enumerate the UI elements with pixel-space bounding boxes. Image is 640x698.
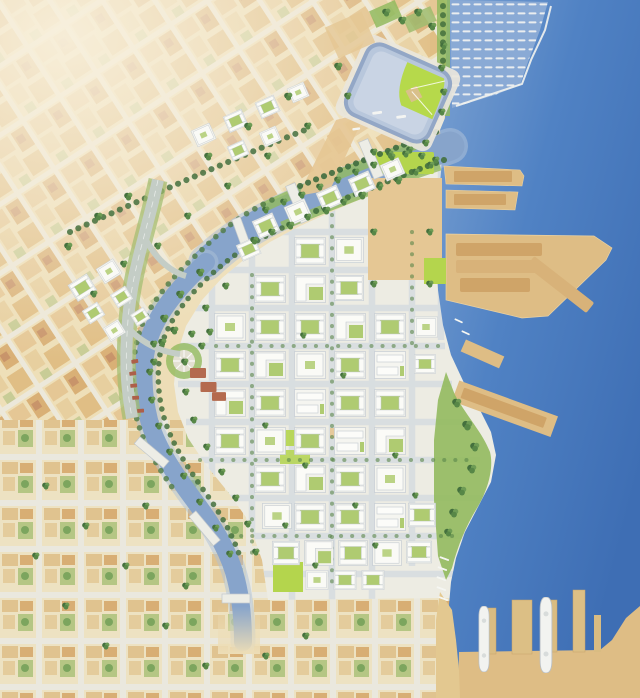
city-block (295, 238, 326, 265)
city-block (335, 504, 366, 531)
city-block (375, 352, 406, 379)
finger-pier (594, 615, 601, 652)
city-block (295, 276, 326, 303)
city-block (335, 390, 366, 417)
finger-pier (512, 600, 532, 654)
city-block (305, 540, 334, 565)
bridge-creek-c (222, 594, 250, 603)
city-block (335, 428, 366, 455)
city-block (295, 428, 326, 455)
city-block (215, 352, 246, 379)
city-block (406, 541, 431, 563)
city-block (334, 275, 363, 300)
brick-building (201, 382, 217, 392)
city-block (295, 504, 326, 531)
warehouse (456, 260, 538, 273)
city-block (215, 428, 246, 455)
city-block (335, 466, 366, 493)
masterplan-map (0, 0, 640, 698)
city-block (375, 314, 406, 341)
houseboat (137, 409, 144, 413)
creek-fadeout (218, 606, 260, 654)
city-block (255, 314, 286, 341)
south-green-field (273, 562, 303, 592)
city-block (414, 355, 435, 374)
city-block (255, 390, 286, 417)
city-block (215, 314, 246, 341)
warehouse (454, 194, 506, 205)
city-block (335, 314, 366, 341)
sports-field (424, 258, 446, 284)
city-block (295, 466, 326, 493)
warehouse (454, 171, 512, 182)
city-block (255, 352, 286, 379)
city-block (375, 390, 406, 417)
city-block (335, 352, 366, 379)
city-block (414, 317, 437, 337)
city-block (362, 570, 384, 589)
houseboat (132, 396, 139, 400)
brick-building (212, 392, 226, 401)
city-block (408, 503, 435, 527)
map-canvas (0, 0, 640, 698)
houseboat (130, 383, 137, 388)
city-block (334, 237, 363, 262)
city-block (334, 570, 356, 589)
brick-building (190, 368, 206, 378)
city-block (306, 570, 328, 589)
ship (479, 606, 489, 672)
city-block (272, 541, 299, 565)
city-block (375, 428, 406, 455)
warehouse (456, 243, 542, 256)
finger-pier (573, 590, 585, 652)
city-block (375, 504, 406, 531)
city-block (295, 314, 326, 341)
city-block (255, 466, 286, 493)
city-block (295, 352, 326, 379)
city-block (295, 390, 326, 417)
city-block (255, 276, 286, 303)
city-block (339, 540, 368, 565)
ship (540, 597, 552, 673)
city-block (375, 466, 406, 493)
city-block (255, 428, 286, 455)
warehouse (460, 278, 530, 292)
